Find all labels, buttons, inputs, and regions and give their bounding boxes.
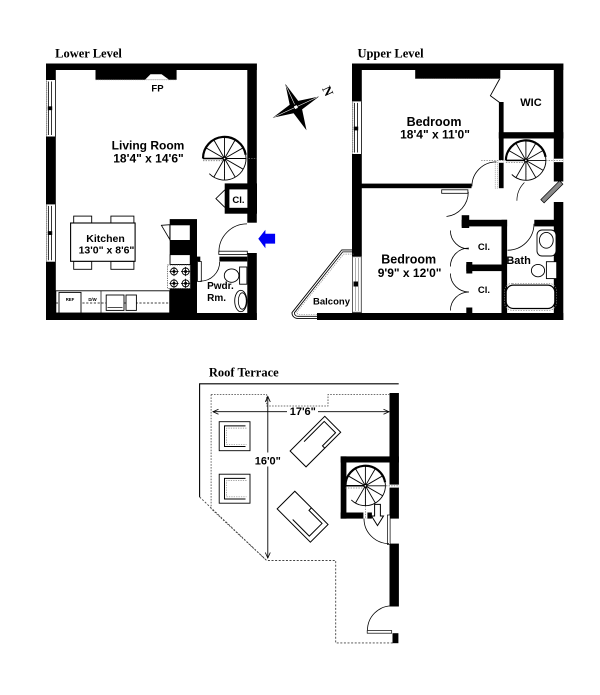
svg-text:Upper Level: Upper Level xyxy=(357,47,424,61)
svg-text:13'0" x 8'6": 13'0" x 8'6" xyxy=(79,245,135,257)
svg-text:WIC: WIC xyxy=(520,97,541,109)
svg-text:Pwdr.: Pwdr. xyxy=(207,281,234,292)
svg-text:16'0": 16'0" xyxy=(255,456,281,468)
svg-text:17'6": 17'6" xyxy=(290,406,316,418)
svg-text:D/W: D/W xyxy=(88,297,97,302)
svg-text:Bedroom: Bedroom xyxy=(381,253,436,267)
svg-text:Cl.: Cl. xyxy=(478,242,490,253)
svg-text:9'9" x 12'0": 9'9" x 12'0" xyxy=(378,266,442,280)
svg-text:Living Room: Living Room xyxy=(112,139,185,153)
svg-text:Balcony: Balcony xyxy=(313,297,351,308)
svg-text:FP: FP xyxy=(151,84,164,95)
svg-text:Rm.: Rm. xyxy=(207,293,226,304)
svg-text:18'4" x 11'0": 18'4" x 11'0" xyxy=(400,128,470,142)
svg-text:Kitchen: Kitchen xyxy=(86,233,125,245)
svg-text:Roof Terrace: Roof Terrace xyxy=(209,366,279,380)
svg-text:Cl.: Cl. xyxy=(232,195,244,206)
svg-text:Bath: Bath xyxy=(506,255,531,267)
svg-text:18'4" x 14'6": 18'4" x 14'6" xyxy=(113,152,183,166)
svg-text:Cl.: Cl. xyxy=(478,285,490,296)
svg-text:Lower Level: Lower Level xyxy=(55,47,122,61)
svg-text:REF: REF xyxy=(66,297,75,302)
